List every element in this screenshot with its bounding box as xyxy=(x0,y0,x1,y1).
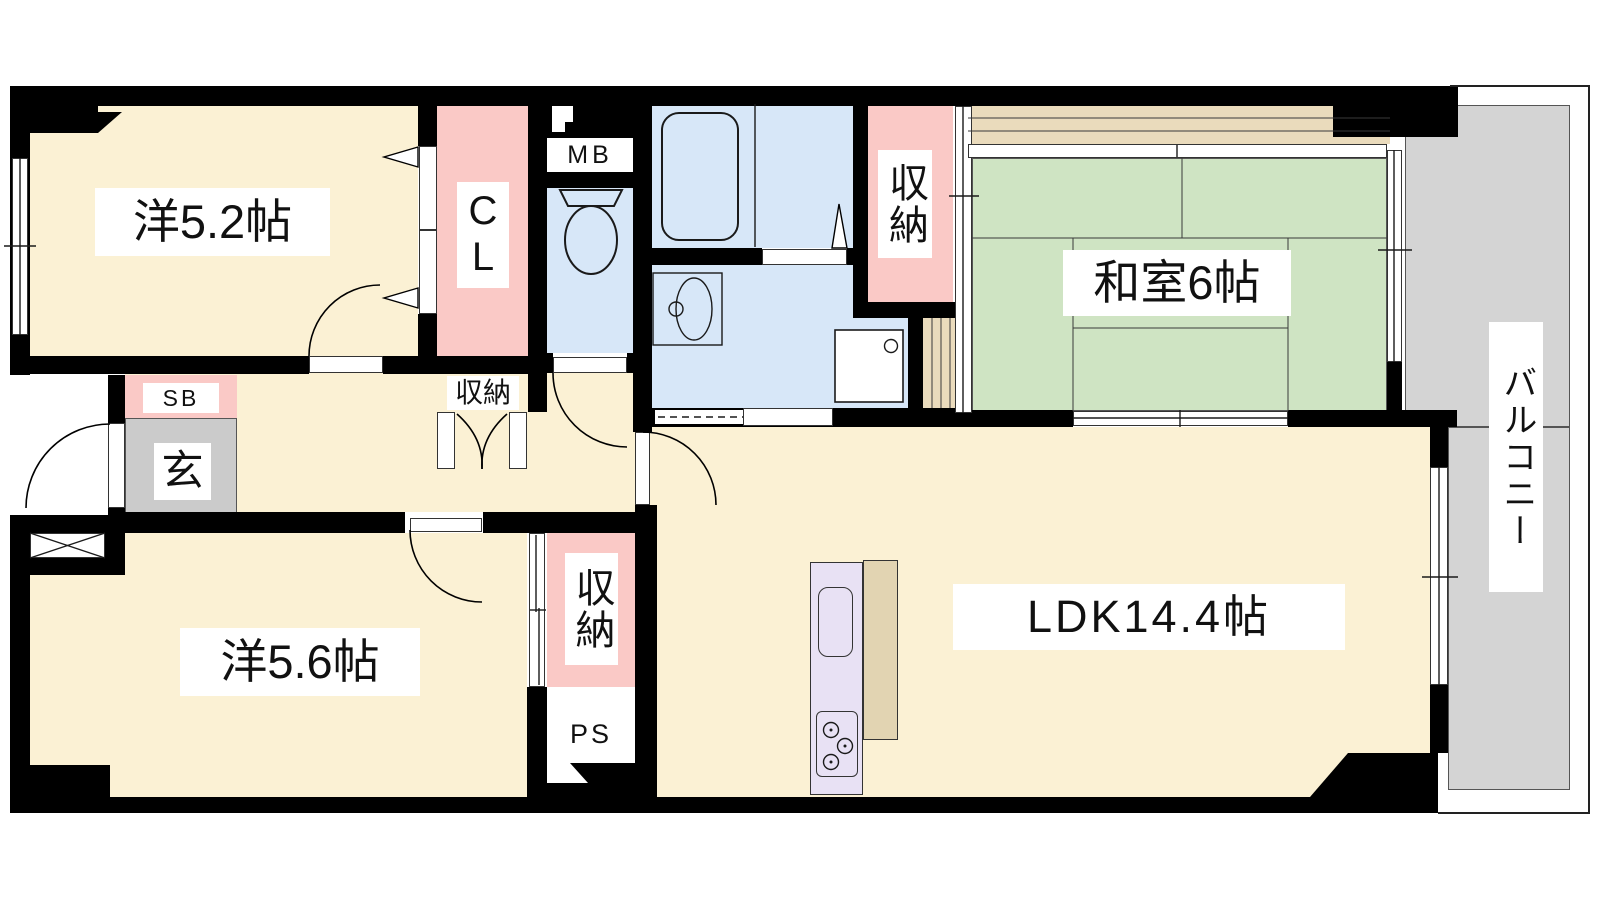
door-leaf xyxy=(309,356,383,373)
wall xyxy=(547,763,635,797)
wall xyxy=(635,505,657,533)
washroom-sliding-door-opening xyxy=(655,410,743,424)
bathroom xyxy=(652,103,853,248)
window xyxy=(1387,150,1402,362)
kitchen-sink-icon xyxy=(818,587,853,657)
wall xyxy=(528,106,547,356)
wall xyxy=(10,356,309,374)
shoe-box-label: SB xyxy=(143,383,219,413)
sliding-track xyxy=(529,533,545,687)
crossed-box-icon xyxy=(30,533,105,558)
wall xyxy=(633,106,652,432)
storage-label-center: 収納 xyxy=(565,553,618,665)
stove-area xyxy=(816,711,858,777)
room-label-bedroom2: 洋5.6帖 xyxy=(180,628,420,696)
floor-plan: 洋5.2帖 CL MB 収納 和室6帖 バルコニー SB 玄 収納 収納 PS … xyxy=(0,0,1600,900)
wall xyxy=(1430,685,1448,753)
ldk-door-leaf xyxy=(635,432,650,505)
wall-corner-block xyxy=(1348,753,1438,797)
wall xyxy=(853,302,957,318)
washroom-sliding-door xyxy=(743,408,833,426)
wood-floor-strip xyxy=(923,318,957,408)
room-label-ldk: LDK14.4帖 xyxy=(953,584,1345,650)
window xyxy=(12,158,28,335)
toilet-room xyxy=(547,188,633,353)
room-label-japanese-room: 和室6帖 xyxy=(1063,250,1291,316)
storage-door-leaf xyxy=(437,412,455,469)
storage-label-bath: 収納 xyxy=(878,150,932,258)
storage-label-hall: 収納 xyxy=(447,376,519,410)
door-leaf xyxy=(410,518,482,532)
oshiire-strip xyxy=(968,106,1390,144)
wall xyxy=(10,86,1458,106)
balcony-floor xyxy=(1405,105,1570,427)
balcony-label: バルコニー xyxy=(1489,322,1543,592)
wall-corner-block xyxy=(1333,86,1458,137)
wall xyxy=(483,512,635,533)
wall xyxy=(853,106,868,302)
wall xyxy=(652,248,762,265)
entrance-label: 玄 xyxy=(154,443,211,500)
storage-door-leaf xyxy=(509,412,527,469)
wall xyxy=(108,508,125,515)
wall xyxy=(125,512,405,533)
wall xyxy=(527,687,547,797)
washroom xyxy=(652,318,908,408)
entrance-door-arc xyxy=(26,424,110,508)
meter-box-notch-step xyxy=(565,122,573,132)
closet-label-cl: CL xyxy=(457,182,509,288)
wall xyxy=(1288,410,1457,427)
wall xyxy=(635,533,657,797)
room-label-bedroom1: 洋5.2帖 xyxy=(95,188,330,256)
wall xyxy=(1430,427,1448,467)
entrance-door-leaf xyxy=(108,423,125,508)
wall xyxy=(418,106,437,146)
washroom xyxy=(652,265,853,318)
sliding-track xyxy=(968,144,1387,158)
tatami-ldk-sliding-door xyxy=(1073,411,1288,426)
closet-door-leaf xyxy=(419,230,437,314)
wall xyxy=(10,797,1438,813)
bathroom-door xyxy=(762,249,847,265)
window xyxy=(1430,467,1448,685)
kitchen-side-counter xyxy=(863,560,898,740)
wall xyxy=(108,375,125,423)
wall xyxy=(383,356,547,374)
wall xyxy=(528,374,547,412)
meter-box-label: MB xyxy=(547,138,633,172)
closet-door-leaf xyxy=(419,146,437,230)
pipe-space-label: PS xyxy=(558,714,624,754)
wall-pillar xyxy=(1387,362,1402,410)
toilet-door-leaf xyxy=(553,357,627,373)
wall xyxy=(418,314,437,356)
wall xyxy=(955,410,1073,427)
